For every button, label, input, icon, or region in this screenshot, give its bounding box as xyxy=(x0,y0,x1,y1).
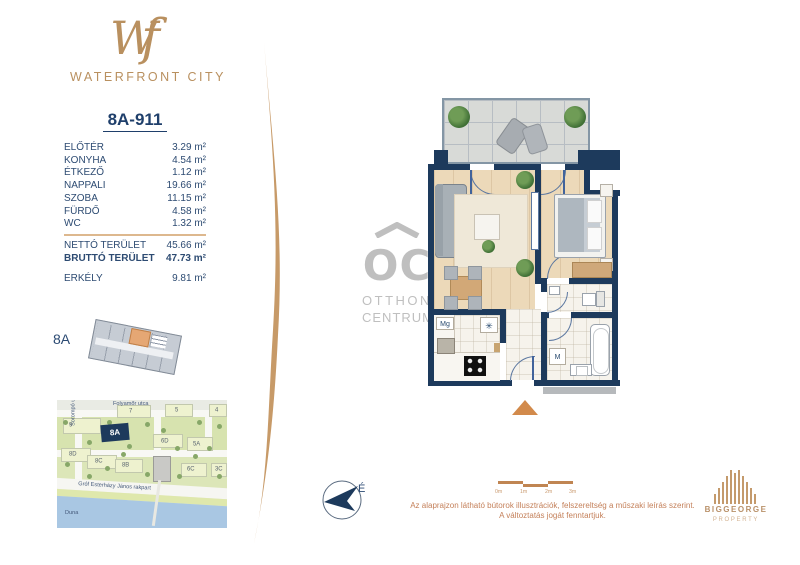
unit-data-panel: 8A-911 ELŐTÉR3.29 m² KONYHA4.54 m² ÉTKEZ… xyxy=(64,110,206,286)
floor-plan: Mg ✳ M xyxy=(428,98,620,416)
plant xyxy=(516,171,534,189)
fridge-label: ✳ xyxy=(480,317,498,333)
waterfront-logo-icon: Wf xyxy=(110,8,200,68)
river-label: Duna xyxy=(65,510,78,516)
scale-segment xyxy=(498,481,523,484)
datasheet-page: Wf WATERFRONT CITY 8A-911 ELŐTÉR3.29 m² … xyxy=(0,0,800,565)
coffee-table xyxy=(474,214,500,240)
top-street-label: Folyamőr utca xyxy=(113,401,148,407)
developer-division: PROPERTY xyxy=(704,517,769,523)
entrance-marker xyxy=(512,400,538,415)
wall-segment xyxy=(541,312,547,380)
washer-label: M xyxy=(549,348,566,365)
toilet-tank xyxy=(596,291,605,307)
nightstand xyxy=(600,184,613,197)
cooktop xyxy=(464,356,486,376)
building-key-label: 8A xyxy=(53,331,70,347)
room-row: NAPPALI19.66 m² xyxy=(64,180,206,193)
wall-segment xyxy=(434,150,448,164)
map-highlighted-building: 8A xyxy=(100,423,129,442)
developer-name: BIGGEORGE xyxy=(698,505,774,514)
room-row: ELŐTÉR3.29 m² xyxy=(64,142,206,155)
desk xyxy=(572,262,612,278)
door-leaf xyxy=(532,356,534,380)
embankment-street-label: Gróf Esterházy János rakpart xyxy=(78,481,151,491)
location-map: Gróf Esterházy János rakpart Folyamőr ut… xyxy=(57,400,227,528)
bathtub-inner xyxy=(593,328,609,374)
gross-area-row: BRUTTÓ TERÜLET47.73 m² xyxy=(64,253,206,266)
threshold-strip xyxy=(543,387,616,394)
dining-chair xyxy=(444,296,458,310)
wall-segment xyxy=(612,196,618,386)
door-leaf xyxy=(470,170,472,194)
net-area-row: NETTÓ TERÜLET45.66 m² xyxy=(64,240,206,253)
gold-divider xyxy=(64,234,206,236)
unit-id: 8A-911 xyxy=(103,110,168,132)
corner-sink xyxy=(549,286,560,295)
disclaimer: Az alaprajzon látható bútorok illusztrác… xyxy=(405,501,700,521)
stairwell xyxy=(150,334,167,349)
balcony-row: ERKÉLY9.81 m² xyxy=(64,273,206,286)
dining-chair xyxy=(468,266,482,280)
roof-icon xyxy=(364,222,430,238)
kitchen-sink xyxy=(437,338,455,354)
sink-basin xyxy=(576,366,588,376)
toilet xyxy=(582,293,596,306)
scale-segment xyxy=(548,481,573,484)
dining-chair xyxy=(468,296,482,310)
wall-segment xyxy=(500,309,506,343)
sliding-door xyxy=(531,192,539,250)
wall-segment xyxy=(428,164,470,170)
duvet xyxy=(558,198,584,252)
pillow xyxy=(587,227,602,250)
dishwasher-label: Mg xyxy=(436,317,454,330)
building-footprint xyxy=(88,319,182,375)
room-row: SZOBA11.15 m² xyxy=(64,193,206,206)
wall-segment xyxy=(494,164,541,170)
dining-chair xyxy=(444,266,458,280)
north-label: É xyxy=(358,483,365,495)
wall-segment xyxy=(534,380,620,386)
wall-segment xyxy=(571,312,612,318)
plant xyxy=(482,240,495,253)
room-row: WC1.32 m² xyxy=(64,218,206,231)
plant xyxy=(448,106,470,128)
room-row: ÉTKEZŐ1.12 m² xyxy=(64,167,206,180)
sofa-back xyxy=(435,184,443,256)
scale-segment xyxy=(523,484,548,487)
brand-name: WATERFRONT CITY xyxy=(60,70,236,84)
door-leaf xyxy=(563,170,565,194)
plant xyxy=(564,106,586,128)
map-trees xyxy=(57,400,62,405)
room-row: FÜRDŐ4.58 m² xyxy=(64,206,206,219)
otthon-centrum-watermark: OC OTTHON CENTRUM xyxy=(362,222,432,325)
biggeorge-crown-icon xyxy=(712,464,760,504)
plant xyxy=(516,259,534,277)
pillow xyxy=(587,200,602,223)
wall-segment xyxy=(541,284,547,292)
room-row: KONYHA4.54 m² xyxy=(64,155,206,168)
gold-curve-divider xyxy=(248,40,292,545)
wall-segment xyxy=(569,278,612,284)
